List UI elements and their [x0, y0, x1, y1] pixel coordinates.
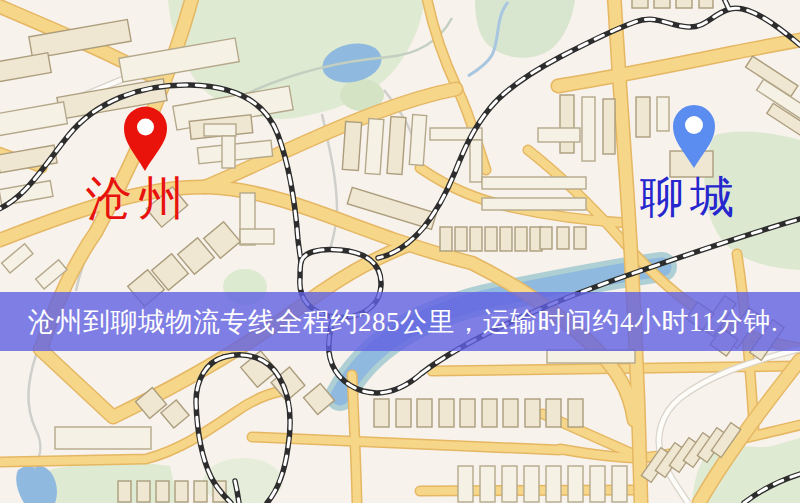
cangzhou-pin-hole [137, 119, 154, 136]
liaocheng-label: 聊城 [640, 176, 740, 220]
liaocheng-pin-hole [685, 116, 703, 134]
map-canvas [0, 0, 800, 503]
cangzhou-label: 沧州 [86, 176, 190, 222]
map-screenshot: 沧州到聊城物流专线全程约285公里，运输时间约4小时11分钟. 沧州 聊城 [0, 0, 800, 503]
route-info-banner: 沧州到聊城物流专线全程约285公里，运输时间约4小时11分钟. [0, 292, 800, 351]
route-info-text: 沧州到聊城物流专线全程约285公里，运输时间约4小时11分钟. [0, 304, 778, 340]
